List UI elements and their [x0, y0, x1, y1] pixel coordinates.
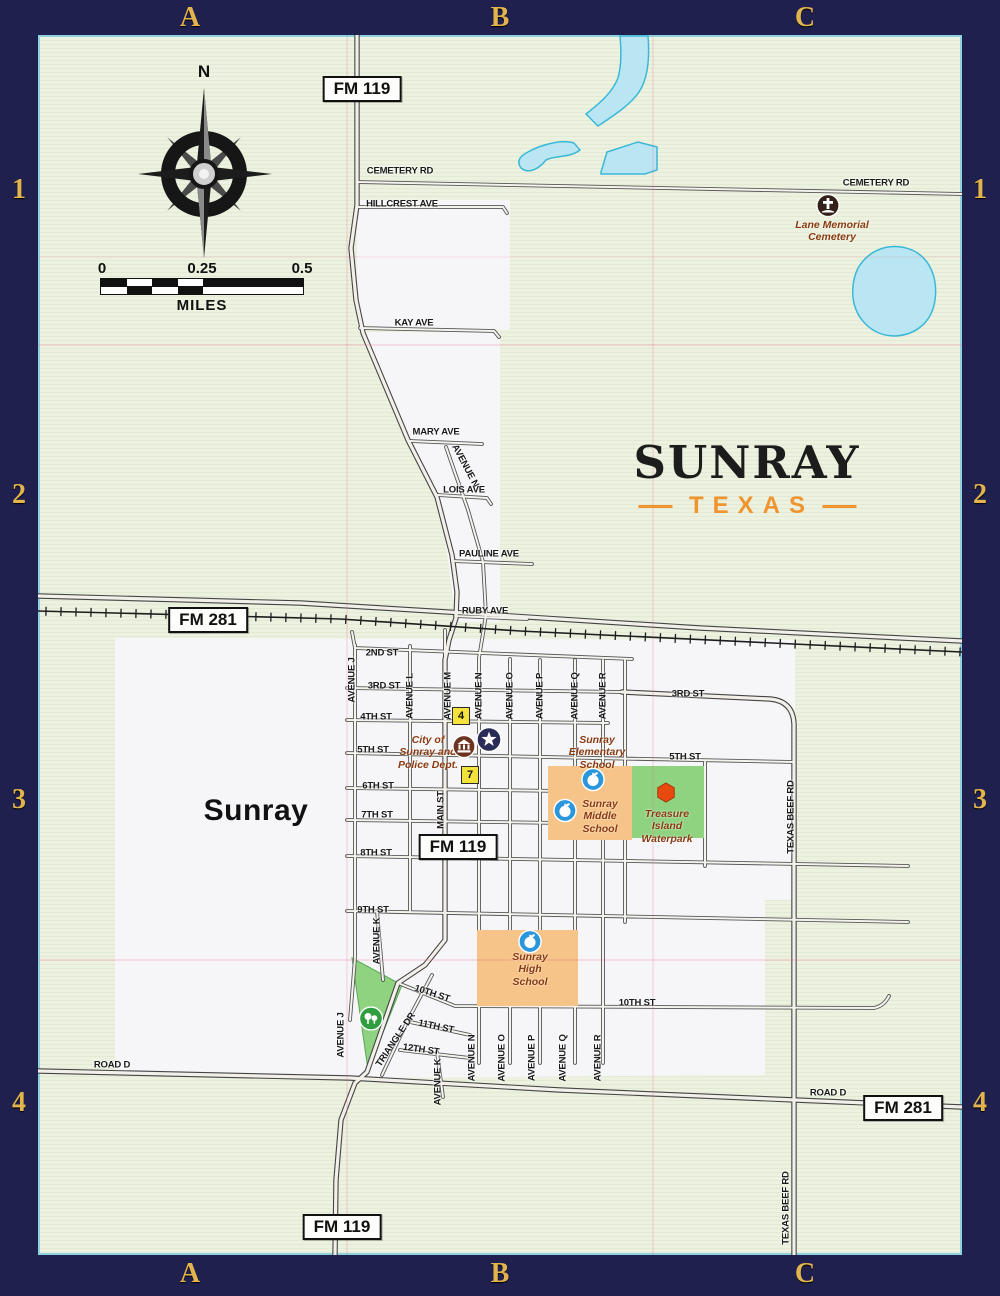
grid-row-4-right: 4: [973, 1087, 987, 1119]
grid-row-4-left: 4: [12, 1087, 26, 1119]
title-state: TEXAS: [680, 494, 814, 518]
grid-column-a-top: A: [180, 2, 200, 34]
title-dash-left: [638, 505, 672, 508]
scale-tick-labels: 0 0.25 0.5: [100, 260, 304, 278]
high-school-area: [477, 930, 578, 1006]
scale-tick-05: 0.5: [292, 260, 313, 277]
scale-unit-label: MILES: [100, 297, 304, 314]
waterpark-area: [632, 766, 704, 838]
grid-row-1-right: 1: [973, 174, 987, 206]
middle-school-area: [548, 766, 632, 840]
compass-rose: [138, 88, 272, 258]
grid-column-c-top: C: [795, 2, 815, 34]
city-name-label: Sunray: [204, 794, 309, 828]
title-state-row: TEXAS: [633, 494, 860, 518]
grid-column-c-bottom: C: [795, 1258, 815, 1290]
grid-row-2-right: 2: [973, 479, 987, 511]
sunray-texas-map-page: CEMETERY RDCEMETERY RDHILLCREST AVEKAY A…: [0, 0, 1000, 1296]
grid-column-a-bottom: A: [180, 1258, 200, 1290]
grid-column-b-top: B: [491, 2, 510, 34]
lake: [853, 247, 936, 336]
lake: [519, 142, 580, 171]
title-dash-right: [822, 505, 856, 508]
map-graphics: [0, 0, 1000, 1296]
grid-row-3-left: 3: [12, 784, 26, 816]
scale-bar: 0 0.25 0.5 MILES: [100, 260, 304, 314]
compass-north-label: N: [198, 62, 210, 82]
lake: [601, 142, 657, 174]
title-city: SUNRAY: [633, 440, 860, 485]
grid-column-b-bottom: B: [491, 1258, 510, 1290]
scale-tick-0: 0: [98, 260, 106, 277]
grid-row-3-right: 3: [973, 784, 987, 816]
map-title: SUNRAY TEXAS: [633, 440, 860, 518]
lake: [586, 36, 649, 126]
grid-row-1-left: 1: [12, 174, 26, 206]
scale-tick-025: 0.25: [187, 260, 216, 277]
scale-strip: [100, 278, 304, 295]
grid-row-2-left: 2: [12, 479, 26, 511]
